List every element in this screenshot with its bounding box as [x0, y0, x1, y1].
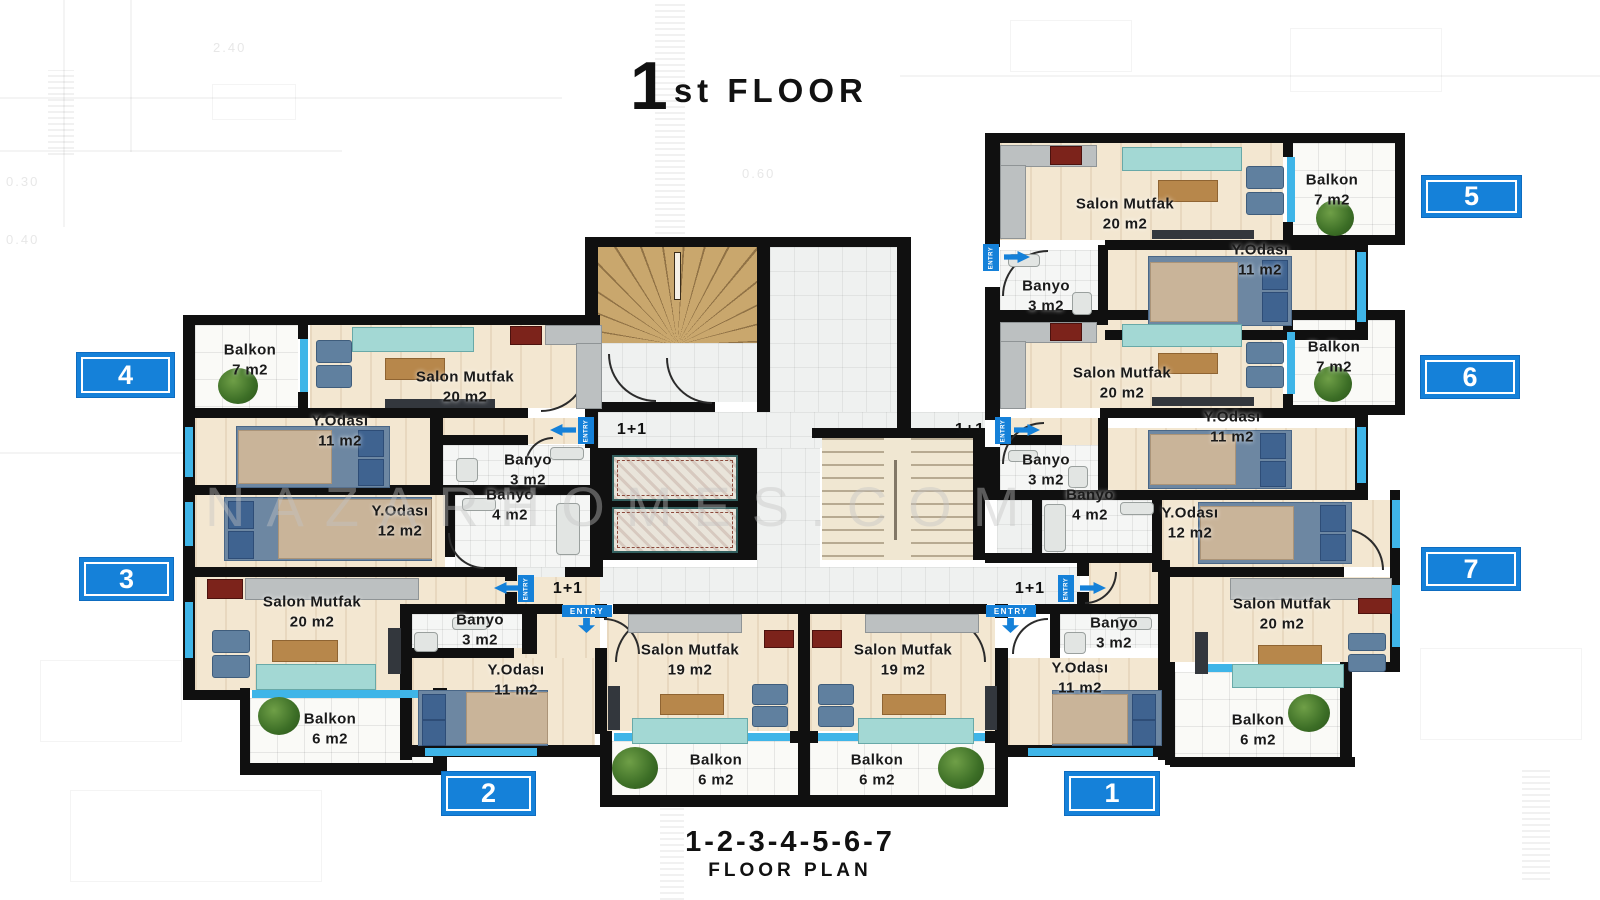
background-dim-label: 0.40	[6, 232, 39, 247]
room-label-apt5-bedroom: Y.Odası11 m2	[1232, 241, 1289, 280]
wall	[810, 604, 987, 614]
unit-type-label: 1+1	[553, 580, 583, 598]
wall	[522, 604, 537, 654]
floor-landing	[770, 247, 897, 412]
window	[185, 502, 193, 546]
room-label-apt4-bedroom: Y.Odası11 m2	[312, 412, 369, 451]
sofa	[1122, 147, 1242, 171]
entry-tag: ENTRY	[1058, 575, 1074, 602]
background-dim-label: 2.40	[213, 40, 246, 55]
wall	[985, 143, 1000, 247]
page-title: 1 st FLOOR	[630, 56, 868, 117]
armchair	[316, 340, 352, 363]
stove	[1050, 323, 1082, 341]
coffee-table	[1258, 645, 1322, 665]
shower	[414, 632, 438, 652]
room-label-apt2-bedroom: Y.Odası11 m2	[488, 661, 545, 700]
background-line	[130, 0, 132, 152]
wall	[985, 320, 1000, 420]
tv-unit	[388, 628, 401, 674]
unit-badge-7: 7	[1421, 547, 1521, 591]
background-rect	[1420, 648, 1582, 740]
plant	[1288, 694, 1330, 732]
title-floor-number: 1	[630, 56, 668, 117]
sofa	[1122, 324, 1242, 347]
coffee-table	[882, 694, 946, 715]
window	[300, 339, 308, 392]
plant	[612, 747, 658, 789]
background-line	[63, 0, 65, 227]
wall	[1050, 614, 1060, 658]
room-label-apt4-balcony: Balkon7 m2	[224, 341, 276, 380]
stove	[1358, 598, 1392, 614]
stove	[1050, 146, 1082, 165]
wall	[183, 567, 513, 577]
room-label-apt1-bedroom: Y.Odası11 m2	[1052, 659, 1109, 698]
footer-units-line: 1-2-3-4-5-6-7	[590, 826, 990, 859]
title-floor-suffix: st FLOOR	[674, 72, 868, 110]
background-rect	[212, 84, 296, 120]
background-rect	[1010, 20, 1132, 72]
kitchen-counter	[1000, 165, 1026, 239]
wall	[400, 614, 412, 760]
wall	[1283, 394, 1293, 405]
wall	[1162, 567, 1344, 577]
window	[1392, 585, 1400, 647]
wall	[505, 567, 517, 581]
bed-pillow	[1132, 720, 1156, 746]
wall	[790, 731, 798, 743]
sofa	[858, 718, 974, 744]
window	[1357, 252, 1366, 322]
kitchen-counter	[865, 614, 979, 633]
floor-plan-page: 2.40 0.60 0.30 0.40	[0, 0, 1600, 900]
background-rect	[1290, 28, 1442, 92]
wall	[585, 237, 770, 247]
room-label-apt2-salon: Salon Mutfak19 m2	[641, 641, 739, 680]
room-label-apt5-bath: Banyo3 m2	[1022, 277, 1070, 316]
armchair	[818, 706, 854, 727]
window	[425, 748, 537, 756]
unit-badge-1: 1	[1064, 771, 1160, 816]
bed-pillow	[422, 694, 446, 720]
bed-pillow	[1132, 694, 1156, 720]
wall	[985, 553, 1032, 563]
window	[1287, 157, 1295, 222]
armchair	[316, 365, 352, 388]
stove	[510, 326, 542, 345]
plant	[258, 697, 300, 735]
wall	[183, 690, 245, 700]
sofa	[1232, 664, 1344, 688]
wall	[1283, 222, 1293, 235]
unit-badge-4: 4	[76, 352, 175, 398]
bed-blanket	[1052, 694, 1128, 744]
entry-tag: ENTRY	[518, 575, 534, 602]
wall	[897, 247, 911, 428]
kitchen-counter	[1000, 322, 1097, 343]
kitchen-counter	[1000, 341, 1026, 409]
coffee-table	[660, 694, 724, 715]
room-label-apt2-balcony: Balkon6 m2	[690, 751, 742, 790]
entry-tag: ENTRY	[578, 417, 594, 444]
room-label-apt1-bath: Banyo3 m2	[1090, 614, 1138, 653]
armchair	[1246, 342, 1284, 364]
footer: 1-2-3-4-5-6-7 FLOOR PLAN	[590, 826, 990, 882]
unit-type-label: 1+1	[1015, 580, 1045, 598]
bathroom-sink	[550, 447, 584, 460]
window	[1028, 748, 1153, 756]
wall	[183, 315, 600, 325]
toilet	[1064, 632, 1086, 654]
room-label-apt1-balcony: Balkon6 m2	[851, 751, 903, 790]
wall	[585, 402, 715, 412]
room-label-apt1-salon: Salon Mutfak19 m2	[854, 641, 952, 680]
door-arc	[1012, 618, 1048, 654]
room-label-apt2-bath: Banyo3 m2	[456, 611, 504, 650]
room-label-apt7-salon: Salon Mutfak20 m2	[1233, 595, 1331, 634]
wall	[798, 604, 810, 805]
room-label-apt5-balcony: Balkon7 m2	[1306, 171, 1358, 210]
armchair	[212, 630, 250, 653]
footer-caption: FLOOR PLAN	[590, 860, 990, 882]
stove	[764, 630, 794, 648]
tv-unit	[1195, 632, 1208, 674]
armchair	[752, 684, 788, 705]
wall	[595, 648, 607, 734]
sofa	[256, 664, 376, 690]
wall	[1032, 553, 1162, 563]
window	[1287, 332, 1295, 394]
tv-unit	[608, 686, 620, 730]
coffee-table	[272, 640, 338, 662]
bed-pillow	[1260, 433, 1286, 459]
armchair	[212, 655, 250, 678]
toilet	[1072, 292, 1092, 315]
plant	[938, 747, 984, 789]
wall	[443, 435, 528, 445]
entry-arrow-icon	[1002, 618, 1019, 633]
wall	[240, 688, 250, 775]
wall	[810, 731, 818, 743]
bed-blanket	[466, 692, 548, 744]
armchair	[1348, 654, 1386, 672]
background-dim-label: 0.30	[6, 174, 39, 189]
room-label-apt4-salon: Salon Mutfak20 m2	[416, 368, 514, 407]
wall	[1395, 143, 1405, 245]
armchair	[1246, 192, 1284, 215]
wall	[1395, 320, 1405, 415]
unit-type-label: 1+1	[955, 421, 985, 439]
armchair	[1246, 166, 1284, 189]
entry-tag: ENTRY	[983, 244, 999, 271]
entry-tag: ENTRY	[995, 417, 1011, 444]
background-line	[900, 75, 1600, 77]
background-dim-label: 0.60	[742, 166, 775, 181]
armchair	[1348, 633, 1386, 651]
room-label-apt6-balcony: Balkon7 m2	[1308, 338, 1360, 377]
room-label-apt6-bedroom: Y.Odası11 m2	[1204, 408, 1261, 447]
background-rect	[70, 790, 322, 882]
kitchen-counter	[1000, 145, 1097, 167]
wall	[985, 731, 995, 743]
armchair	[818, 684, 854, 705]
watermark: NAZARHOMES.COM	[205, 474, 1405, 539]
unit-badge-3: 3	[79, 557, 174, 601]
background-line	[0, 452, 187, 454]
room-label-apt5-salon: Salon Mutfak20 m2	[1076, 195, 1174, 234]
background-line	[0, 150, 342, 152]
kitchen-counter	[545, 325, 602, 345]
background-rect	[40, 660, 182, 742]
room-label-apt7-balcony: Balkon6 m2	[1232, 711, 1284, 750]
bed-blanket	[1150, 262, 1238, 322]
tv-unit	[985, 686, 997, 730]
kitchen-counter	[628, 614, 742, 633]
wall	[565, 567, 603, 577]
kitchen-counter	[576, 343, 602, 409]
wall	[298, 392, 308, 408]
wall	[770, 237, 911, 247]
entry-tag: ENTRY	[562, 605, 612, 617]
room-label-apt6-salon: Salon Mutfak20 m2	[1073, 364, 1171, 403]
unit-badge-2: 2	[441, 771, 536, 816]
background-hatch	[1522, 770, 1550, 880]
wall	[1035, 604, 1160, 614]
room-label-apt3-balcony: Balkon6 m2	[304, 710, 356, 749]
wall	[757, 247, 770, 412]
window	[185, 427, 193, 477]
armchair	[1246, 366, 1284, 388]
wall	[1283, 143, 1293, 157]
stove	[812, 630, 842, 648]
bed-pillow	[1262, 292, 1288, 322]
staircase-newel	[674, 252, 681, 300]
wall	[613, 604, 798, 614]
armchair	[752, 706, 788, 727]
entry-tag: ENTRY	[986, 605, 1036, 617]
wall	[600, 795, 1000, 807]
wall	[1170, 757, 1355, 767]
sofa	[352, 327, 474, 352]
room-label-apt3-salon: Salon Mutfak20 m2	[263, 593, 361, 632]
unit-type-label: 1+1	[617, 421, 647, 439]
background-line	[0, 97, 562, 99]
bed-pillow	[422, 720, 446, 746]
sofa	[632, 718, 748, 744]
stove	[207, 579, 243, 599]
wall	[985, 133, 1405, 143]
wall	[298, 325, 308, 339]
background-hatch	[48, 70, 74, 155]
unit-badge-5: 5	[1421, 175, 1522, 218]
unit-badge-6: 6	[1420, 355, 1520, 399]
window	[185, 602, 193, 658]
wall	[240, 763, 447, 775]
